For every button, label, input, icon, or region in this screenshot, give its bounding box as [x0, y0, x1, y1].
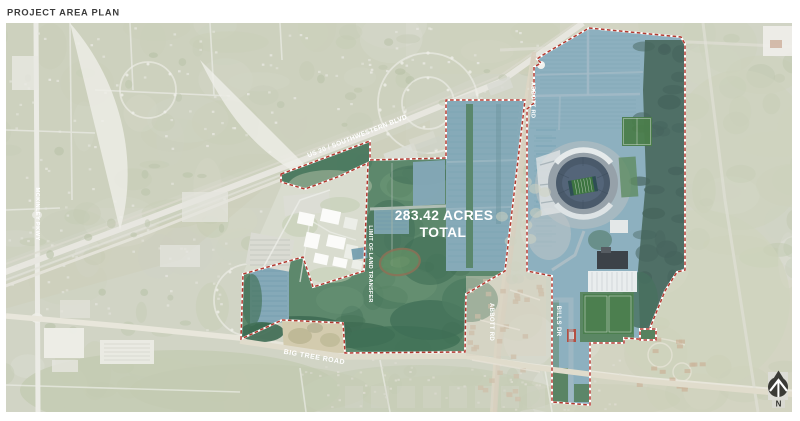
svg-text:283.42 ACRES: 283.42 ACRES — [395, 208, 494, 223]
svg-text:LIMIT OF LAND TRANSFER: LIMIT OF LAND TRANSFER — [367, 225, 373, 302]
svg-text:ABBOTT RD: ABBOTT RD — [488, 303, 494, 341]
svg-text:MCKINLEY PKWY: MCKINLEY PKWY — [34, 187, 40, 240]
svg-text:ABBOTT RD: ABBOTT RD — [530, 82, 536, 119]
svg-text:PROJECT AREA PLAN: PROJECT AREA PLAN — [7, 8, 120, 18]
svg-text:TOTAL: TOTAL — [420, 225, 467, 240]
svg-text:BILLS DR: BILLS DR — [555, 306, 561, 337]
svg-text:N: N — [776, 400, 782, 409]
